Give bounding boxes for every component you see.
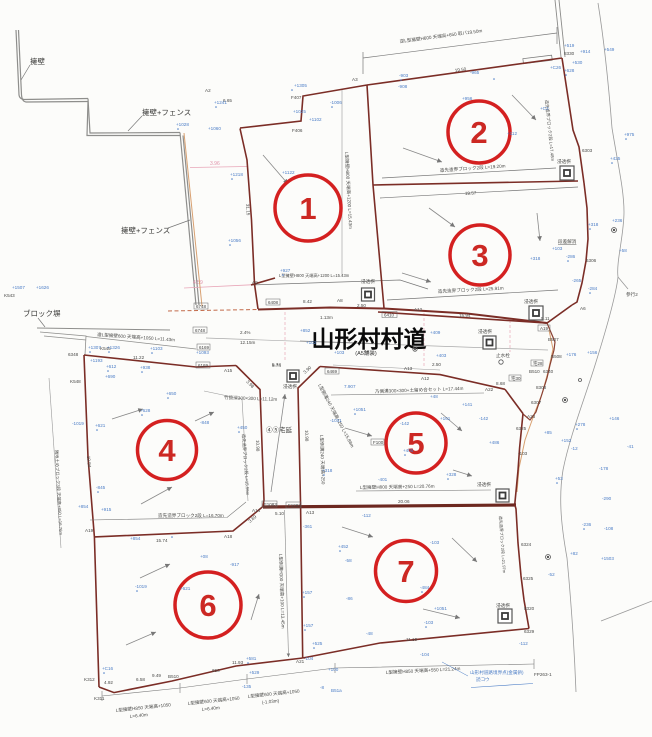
svg-text:浸透桝: 浸透桝 xyxy=(557,158,571,165)
svg-text:-112: -112 xyxy=(362,513,371,518)
svg-text:+85: +85 xyxy=(544,430,552,435)
svg-text:+103: +103 xyxy=(334,350,345,355)
svg-text:2.50: 2.50 xyxy=(432,362,441,367)
svg-text:A9: A9 xyxy=(252,280,258,285)
svg-text:6469: 6469 xyxy=(327,369,338,374)
svg-text:8320: 8320 xyxy=(524,606,535,611)
svg-text:6325: 6325 xyxy=(523,576,534,581)
svg-text:31.15: 31.15 xyxy=(245,204,251,216)
svg-text:+157: +157 xyxy=(302,590,313,595)
svg-text:4.59: 4.59 xyxy=(193,280,203,286)
svg-text:8.68: 8.68 xyxy=(496,381,505,386)
svg-text:+529: +529 xyxy=(249,670,260,675)
svg-text:+112: +112 xyxy=(507,131,517,136)
svg-text:6325: 6325 xyxy=(516,426,527,431)
svg-text:-965: -965 xyxy=(470,70,480,75)
svg-text:6748: 6748 xyxy=(195,328,206,333)
svg-text:-848: -848 xyxy=(200,420,210,425)
svg-text:+854: +854 xyxy=(78,504,89,509)
svg-text:+48: +48 xyxy=(430,394,438,399)
svg-text:F1083: F1083 xyxy=(288,503,301,508)
svg-text:浸透桝: 浸透桝 xyxy=(477,481,491,488)
svg-text:-361: -361 xyxy=(303,524,313,529)
svg-text:+1305: +1305 xyxy=(294,83,307,88)
svg-text:+852: +852 xyxy=(300,328,311,333)
svg-text:+53: +53 xyxy=(555,476,563,481)
svg-text:6303: 6303 xyxy=(582,148,593,153)
svg-text:19.57: 19.57 xyxy=(465,190,477,196)
svg-text:6748: 6748 xyxy=(196,304,207,309)
svg-text:参行2: 参行2 xyxy=(626,291,638,298)
svg-text:+318: +318 xyxy=(588,222,599,227)
svg-text:2: 2 xyxy=(470,115,487,150)
svg-text:+318: +318 xyxy=(530,256,541,261)
svg-text:A13: A13 xyxy=(404,366,413,371)
svg-text:12.15m: 12.15m xyxy=(240,340,255,345)
svg-text:読コウ: 読コウ xyxy=(476,676,490,683)
svg-text:+854: +854 xyxy=(130,536,141,541)
svg-text:+141: +141 xyxy=(462,402,473,407)
svg-text:-903: -903 xyxy=(399,73,409,78)
svg-text:造先造界ブロック2段 L=16.70m: 造先造界ブロック2段 L=16.70m xyxy=(158,512,224,519)
svg-text:浸透桝: 浸透桝 xyxy=(361,278,375,285)
svg-text:+328: +328 xyxy=(446,472,457,477)
svg-text:+1102: +1102 xyxy=(309,117,322,122)
svg-text:-142: -142 xyxy=(400,421,410,426)
svg-text:+103: +103 xyxy=(552,246,563,251)
svg-text:ブロック塀: ブロック塀 xyxy=(23,308,61,318)
svg-text:-1019: -1019 xyxy=(72,421,84,426)
svg-text:+146: +146 xyxy=(609,416,620,421)
svg-text:-290: -290 xyxy=(602,496,612,501)
svg-text:A23: A23 xyxy=(527,414,536,419)
svg-text:+100: +100 xyxy=(328,667,339,672)
svg-text:+1051: +1051 xyxy=(353,407,366,412)
svg-text:+581: +581 xyxy=(246,656,257,661)
svg-text:宅30: 宅30 xyxy=(511,375,521,381)
svg-text:+1122: +1122 xyxy=(282,170,295,175)
svg-text:擁壁: 擁壁 xyxy=(30,56,45,66)
svg-text:K311: K311 xyxy=(94,696,105,701)
svg-text:20.06: 20.06 xyxy=(398,499,410,504)
svg-text:止水栓: 止水栓 xyxy=(496,352,510,359)
svg-text:A22: A22 xyxy=(485,387,494,392)
svg-text:+1307: +1307 xyxy=(88,345,101,350)
svg-text:-401: -401 xyxy=(378,477,388,482)
svg-text:+409: +409 xyxy=(430,330,441,335)
svg-text:A12: A12 xyxy=(414,307,423,312)
svg-text:段差解消: 段差解消 xyxy=(558,238,577,245)
svg-text:A8: A8 xyxy=(337,298,343,303)
svg-text:6348: 6348 xyxy=(68,352,79,357)
svg-text:-265: -265 xyxy=(572,278,582,283)
svg-text:-48: -48 xyxy=(366,631,373,636)
svg-text:-908: -908 xyxy=(398,84,408,89)
svg-text:+1503: +1503 xyxy=(601,556,614,561)
svg-text:-8: -8 xyxy=(320,685,325,690)
svg-text:-1031: -1031 xyxy=(330,418,342,423)
svg-text:+927: +927 xyxy=(280,268,291,273)
svg-text:7.907: 7.907 xyxy=(344,384,356,389)
svg-text:650: 650 xyxy=(212,668,220,673)
svg-text:-484: -484 xyxy=(420,585,430,590)
svg-text:6307: 6307 xyxy=(531,400,542,405)
svg-text:(A5舗装): (A5舗装) xyxy=(355,349,377,357)
svg-text:+650: +650 xyxy=(166,391,177,396)
svg-text:6169: 6169 xyxy=(198,363,209,368)
svg-text:+58: +58 xyxy=(619,248,627,253)
svg-text:K548: K548 xyxy=(70,379,81,384)
svg-text:+915: +915 xyxy=(101,507,112,512)
svg-text:A6: A6 xyxy=(580,306,586,311)
svg-text:+1507: +1507 xyxy=(12,285,25,290)
svg-text:7: 7 xyxy=(397,554,414,589)
svg-text:-12: -12 xyxy=(571,446,578,451)
svg-text:+549: +549 xyxy=(604,47,615,52)
svg-text:-52: -52 xyxy=(548,572,555,577)
svg-text:+1093: +1093 xyxy=(196,350,209,355)
svg-text:6: 6 xyxy=(199,588,216,623)
svg-text:+450: +450 xyxy=(237,425,248,430)
svg-text:+156: +156 xyxy=(587,350,598,355)
svg-text:-845: -845 xyxy=(96,485,106,490)
svg-text:+157: +157 xyxy=(303,623,314,628)
svg-text:8330: 8330 xyxy=(564,51,575,56)
svg-text:-284: -284 xyxy=(588,286,598,291)
svg-text:FP263-1: FP263-1 xyxy=(534,672,552,677)
svg-text:-236: -236 xyxy=(582,522,592,527)
svg-text:15.74: 15.74 xyxy=(156,538,168,543)
svg-text:6306: 6306 xyxy=(586,258,597,263)
svg-text:+425: +425 xyxy=(610,156,621,161)
svg-text:宅28: 宅28 xyxy=(533,360,543,366)
svg-text:3: 3 xyxy=(471,238,488,273)
svg-text:浸透桝: 浸透桝 xyxy=(524,298,538,305)
svg-text:+1326: +1326 xyxy=(107,345,120,350)
svg-text:+628: +628 xyxy=(140,408,151,413)
svg-text:-41: -41 xyxy=(627,444,634,449)
svg-text:+152: +152 xyxy=(561,438,572,443)
svg-text:1.13m: 1.13m xyxy=(320,315,333,320)
svg-text:-104: -104 xyxy=(304,656,314,661)
svg-text:B507: B507 xyxy=(548,337,559,342)
svg-text:6408: 6408 xyxy=(268,300,279,305)
svg-text:+530: +530 xyxy=(572,60,583,65)
svg-text:擁壁+フェンス: 擁壁+フェンス xyxy=(142,107,191,117)
svg-text:-286: -286 xyxy=(566,254,576,259)
svg-text:L型擁壁H800 天端高+1200 L=15.43m: L型擁壁H800 天端高+1200 L=15.43m xyxy=(279,272,350,279)
svg-text:B510: B510 xyxy=(529,369,540,374)
svg-text:+318: +318 xyxy=(322,468,333,473)
svg-text:+452: +452 xyxy=(338,544,349,549)
svg-text:F407: F407 xyxy=(291,95,302,100)
svg-text:山形村村道: 山形村村道 xyxy=(312,326,427,352)
svg-text:6410: 6410 xyxy=(384,313,395,318)
svg-text:A19: A19 xyxy=(540,326,549,331)
svg-text:+1060: +1060 xyxy=(208,126,221,131)
svg-text:+1103: +1103 xyxy=(150,346,163,351)
svg-text:5: 5 xyxy=(407,426,424,461)
svg-text:-58: -58 xyxy=(345,558,352,563)
svg-text:K312: K312 xyxy=(84,677,95,682)
svg-text:-86: -86 xyxy=(346,596,353,601)
svg-text:A15: A15 xyxy=(224,368,233,373)
svg-text:+403: +403 xyxy=(436,353,447,358)
svg-text:-1019: -1019 xyxy=(135,584,147,589)
svg-text:山形村道路境界点(金属鋲): 山形村道路境界点(金属鋲) xyxy=(470,669,524,676)
svg-text:9.49: 9.49 xyxy=(152,673,161,678)
svg-text:11.22: 11.22 xyxy=(133,355,145,360)
svg-text:+1051: +1051 xyxy=(434,606,447,611)
svg-text:-104: -104 xyxy=(420,652,430,657)
svg-text:+176: +176 xyxy=(566,352,577,357)
svg-text:+1056: +1056 xyxy=(228,238,241,243)
svg-text:10.98: 10.98 xyxy=(255,440,260,452)
svg-text:+975: +975 xyxy=(624,132,635,137)
svg-text:B510: B510 xyxy=(168,674,179,679)
svg-text:A18: A18 xyxy=(224,534,233,539)
svg-text:A19: A19 xyxy=(85,528,94,533)
svg-text:擁壁+フェンス: 擁壁+フェンス xyxy=(121,225,170,235)
svg-text:+1028: +1028 xyxy=(176,122,189,127)
svg-text:-1006: -1006 xyxy=(330,100,342,105)
svg-text:+102: +102 xyxy=(306,340,317,345)
svg-text:19.84: 19.84 xyxy=(86,456,92,468)
svg-text:+161: +161 xyxy=(440,416,451,421)
svg-text:11.19: 11.19 xyxy=(406,637,418,642)
svg-text:浸透桝: 浸透桝 xyxy=(496,602,510,609)
svg-text:F100: F100 xyxy=(373,440,384,445)
svg-text:1: 1 xyxy=(299,191,316,226)
svg-text:11.93: 11.93 xyxy=(232,660,244,665)
svg-text:+C26: +C26 xyxy=(550,65,562,70)
svg-text:-103: -103 xyxy=(430,540,440,545)
svg-text:+1218: +1218 xyxy=(230,172,243,177)
svg-text:A13: A13 xyxy=(306,510,315,515)
svg-text:+C16: +C16 xyxy=(102,666,114,671)
svg-text:-103: -103 xyxy=(518,451,528,456)
svg-text:+405: +405 xyxy=(403,448,414,453)
svg-text:+621: +621 xyxy=(95,423,106,428)
svg-text:10.98: 10.98 xyxy=(304,430,309,442)
svg-text:F1083: F1083 xyxy=(264,502,277,507)
svg-text:-142: -142 xyxy=(479,416,489,421)
svg-text:K543: K543 xyxy=(4,293,15,298)
svg-text:6340: 6340 xyxy=(543,369,554,374)
svg-text:-108: -108 xyxy=(604,526,614,531)
svg-text:B508: B508 xyxy=(551,354,562,359)
svg-text:-112: -112 xyxy=(519,641,528,646)
svg-text:F406: F406 xyxy=(292,128,303,133)
svg-text:6.58: 6.58 xyxy=(136,677,145,682)
svg-text:6329: 6329 xyxy=(524,629,535,634)
svg-text:-178: -178 xyxy=(599,466,609,471)
svg-text:5.74: 5.74 xyxy=(272,363,281,368)
svg-text:-103: -103 xyxy=(424,620,434,625)
svg-text:A12: A12 xyxy=(421,376,430,381)
svg-text:A2: A2 xyxy=(205,88,211,93)
svg-text:8308: 8308 xyxy=(536,385,547,390)
svg-text:-917: -917 xyxy=(230,562,240,567)
svg-text:+1241: +1241 xyxy=(214,100,227,105)
svg-text:+C3: +C3 xyxy=(540,106,549,111)
svg-text:A3: A3 xyxy=(352,77,358,82)
svg-text:4: 4 xyxy=(158,433,176,468)
svg-text:2.50: 2.50 xyxy=(357,303,366,308)
svg-text:5.10: 5.10 xyxy=(275,511,284,516)
svg-text:4.92: 4.92 xyxy=(104,680,113,685)
svg-text:+525: +525 xyxy=(312,641,323,646)
svg-text:+1193: +1193 xyxy=(90,358,103,363)
svg-text:+236: +236 xyxy=(612,218,623,223)
svg-text:+956: +956 xyxy=(462,96,473,101)
svg-text:+690: +690 xyxy=(105,374,116,379)
svg-text:+621: +621 xyxy=(180,586,191,591)
svg-text:+519: +519 xyxy=(564,43,575,48)
svg-text:6324: 6324 xyxy=(521,542,532,547)
svg-text:-135: -135 xyxy=(242,684,252,689)
svg-text:8.42: 8.42 xyxy=(303,299,312,304)
svg-text:+1626: +1626 xyxy=(36,285,49,290)
svg-text:+278: +278 xyxy=(575,422,586,427)
svg-text:+914: +914 xyxy=(580,49,591,54)
svg-text:2.4%: 2.4% xyxy=(240,330,250,335)
svg-text:A14: A14 xyxy=(252,508,261,513)
svg-text:+612: +612 xyxy=(106,364,117,369)
svg-text:浸透桝: 浸透桝 xyxy=(478,328,492,335)
svg-text:5.11: 5.11 xyxy=(541,316,550,321)
svg-text:+82: +82 xyxy=(570,551,578,556)
svg-text:+1025: +1025 xyxy=(293,109,306,114)
svg-text:浸透桝: 浸透桝 xyxy=(283,383,297,390)
svg-text:+08: +08 xyxy=(200,554,208,559)
svg-text:+938: +938 xyxy=(140,365,151,370)
svg-text:15.94: 15.94 xyxy=(459,313,471,318)
svg-text:+486: +486 xyxy=(489,440,500,445)
svg-text:B51a: B51a xyxy=(331,688,342,693)
svg-text:3.96: 3.96 xyxy=(210,161,220,167)
svg-text:+628: +628 xyxy=(564,68,575,73)
